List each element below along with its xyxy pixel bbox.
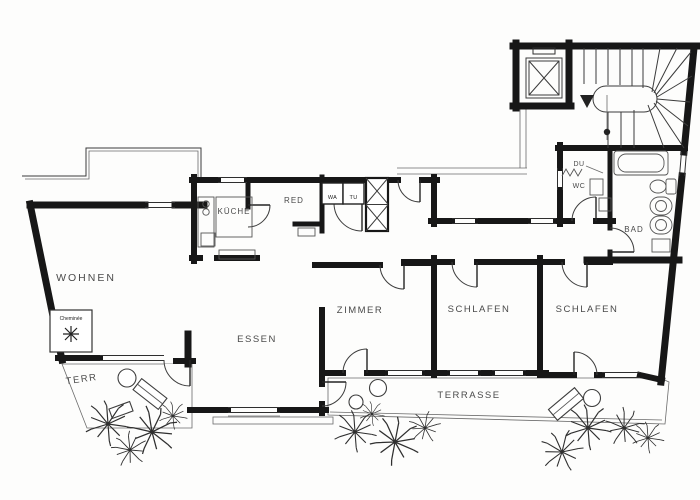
plant-icon [335,410,377,452]
shower-icon [562,169,582,176]
entry-door-swing [398,180,420,202]
fireplace-icon [63,326,79,342]
floor-plan-drawing: WA TU Cheminée [0,0,700,500]
kitchen-fixtures [198,197,315,259]
wa-label: WA [328,195,337,201]
toilet-icon [650,180,666,193]
red-door-swing [248,205,270,227]
room-label-schlafen-1: SCHLAFEN [448,304,511,315]
schlafen2-terrace-door-swing [574,352,597,375]
room-label-essen: ESSEN [237,334,277,345]
zimmer-terrace-door-swing [343,349,367,373]
plant-icon [360,401,385,426]
room-label-bad: BAD [624,225,643,234]
round-table-icon [118,369,136,387]
room-label-zimmer: ZIMMER [337,305,383,316]
stove-icon [201,233,215,246]
duwc-fixtures [562,166,611,211]
schlafen2-door-swing [562,262,587,287]
closet-door-swing [334,203,362,231]
round-table-icon [370,380,387,397]
cabinet-icon [652,239,670,252]
toilet-tank [666,179,676,194]
plant-icon [105,425,154,474]
stair-direction-arrow-icon [580,95,594,108]
room-label-schlafen-2: SCHLAFEN [556,304,619,315]
room-label-wohnen: WOHNEN [56,272,116,284]
sink-icon [203,209,209,215]
elevator-icon [529,61,559,95]
essen-terrace-door-swing [322,382,346,406]
duct-shaft [366,178,388,231]
plant-icon [366,411,426,471]
walls [30,43,698,413]
du-leader-line [586,166,603,173]
plant-icon [404,406,446,448]
sink-icon [650,216,672,234]
fireplace: Cheminée [50,310,92,352]
staircase [580,48,692,148]
room-label-du: DU [573,161,584,168]
plant-icon [598,401,652,455]
zimmer-door-swing [380,265,404,289]
stair-newel [593,86,657,112]
washbasin-icon [590,179,603,195]
elevator [526,58,562,98]
room-label-terrasse: TERRASSE [437,390,500,401]
fireplace-label: Cheminée [60,316,83,322]
duwc-door-swing [572,197,596,221]
round-table-icon [349,395,363,409]
floor-plan-page: WA TU Cheminée [0,0,700,500]
plant-icon [633,422,665,454]
plants [86,398,664,478]
plant-icon [159,402,187,430]
room-label-red: RED [284,196,304,205]
plant-icon [566,405,612,451]
bad-fixtures [614,151,676,252]
sink-icon [650,197,672,215]
radiator-icon [298,228,315,236]
lounge-chair-icon [109,402,133,419]
stair-walk-dot [604,129,610,135]
laundry-appliances: WA TU [322,183,364,204]
schlafen1-door-swing [452,262,477,287]
tu-label: TU [350,195,358,201]
room-label-terr: TERR [65,372,98,387]
room-label-wc: WC [573,183,586,190]
plant-icon [535,424,589,478]
room-label-kueche: KÜCHE [217,207,250,216]
round-table-icon [584,390,601,407]
